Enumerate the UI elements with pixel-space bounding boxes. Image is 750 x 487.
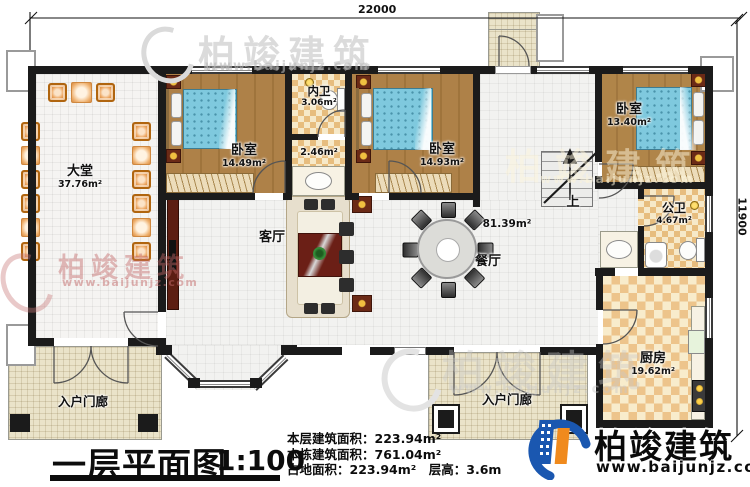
label-stairs-up: 上 bbox=[563, 196, 583, 211]
label-kitchen: 厨房 19.62m² bbox=[620, 352, 686, 378]
stat-floor-area: 本层建筑面积：223.94m² bbox=[287, 431, 501, 447]
label-dining: 餐厅 bbox=[468, 255, 508, 270]
label-living: 客厅 bbox=[252, 231, 292, 246]
label-bedroom1: 卧室 14.49m² bbox=[208, 144, 280, 170]
label-corridor: 2.46m² bbox=[296, 148, 342, 159]
label-porch-right: 入户门廊 bbox=[472, 393, 542, 407]
page-title: 一层平面图 bbox=[52, 438, 227, 487]
dimension-right: 11900 bbox=[736, 197, 749, 235]
label-bedroom2: 卧室 14.93m² bbox=[406, 143, 478, 169]
floor-plan-canvas: 22000 11900 大堂 37.76m² 卧室 14.49m² 内卫 3.0… bbox=[0, 0, 750, 487]
label-public-bath: 公卫 4.67m² bbox=[648, 202, 700, 226]
dimension-top: 22000 bbox=[358, 3, 396, 16]
logo-url: www.baijunjz.com bbox=[596, 458, 750, 476]
logo-icon bbox=[510, 414, 592, 480]
area-stats: 本层建筑面积：223.94m² 本栋建筑面积：761.04m² 占地面积：223… bbox=[287, 431, 501, 478]
label-lobby: 大堂 37.76m² bbox=[45, 165, 115, 191]
logo: 柏竣建筑 www.baijunjz.com bbox=[510, 414, 748, 482]
label-open-area: 81.39m² bbox=[480, 218, 534, 230]
label-porch-left: 入户门廊 bbox=[48, 395, 118, 409]
stat-footprint-and-height: 占地面积：223.94m² 层高：3.6m bbox=[287, 462, 501, 478]
title-underline bbox=[50, 475, 280, 478]
label-inner-bath: 内卫 3.06m² bbox=[295, 85, 343, 109]
stat-building-area: 本栋建筑面积：761.04m² bbox=[287, 447, 501, 463]
label-bedroom3: 卧室 13.40m² bbox=[593, 103, 665, 129]
